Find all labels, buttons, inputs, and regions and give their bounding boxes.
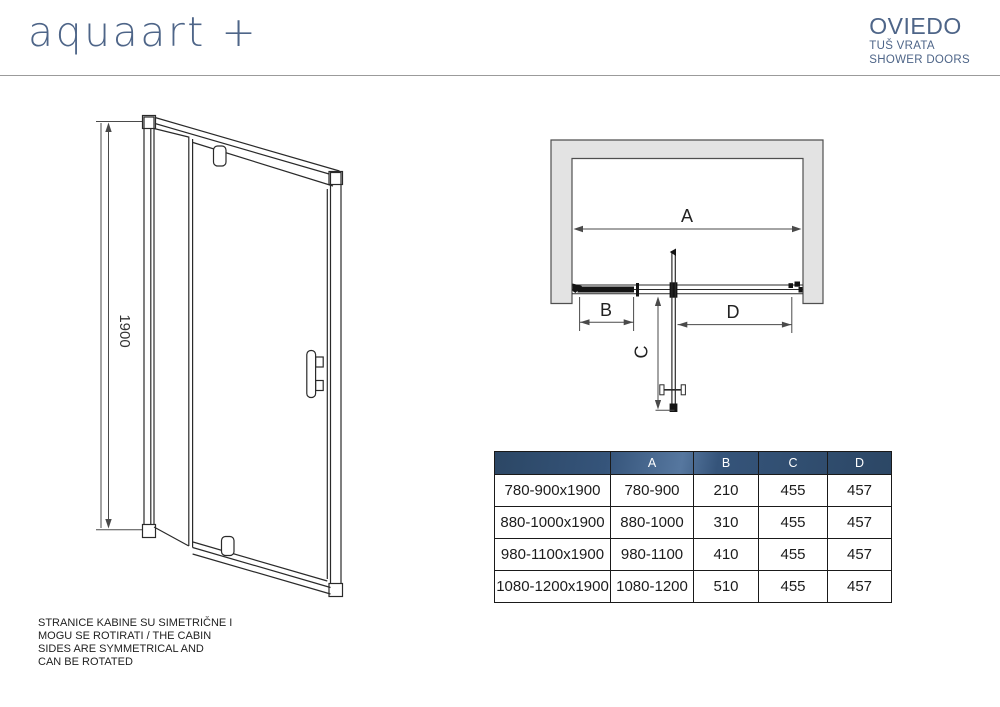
door-handle-top-view xyxy=(660,385,686,395)
product-name: OVIEDO xyxy=(869,14,970,39)
brand-logo: aquaart + xyxy=(28,8,258,56)
cell-b: 310 xyxy=(694,507,759,539)
cell-size: 880-1000x1900 xyxy=(495,507,611,539)
note-line: MOGU SE ROTIRATI / THE CABIN xyxy=(38,630,232,643)
door-handle xyxy=(307,351,323,398)
product-subtitle-en: SHOWER DOORS xyxy=(869,53,970,67)
top-view-drawing: A xyxy=(535,128,870,428)
col-header-a: A xyxy=(611,452,694,475)
cell-c: 455 xyxy=(759,571,828,603)
cell-d: 457 xyxy=(828,475,892,507)
note-line: STRANICE KABINE SU SIMETRIČNE I xyxy=(38,617,232,630)
table-row: 880-1000x1900 880-1000 310 455 457 xyxy=(495,507,892,539)
cell-c: 455 xyxy=(759,507,828,539)
top-clip xyxy=(214,146,227,166)
dim-c-label: C xyxy=(632,346,652,359)
cell-size: 780-900x1900 xyxy=(495,475,611,507)
col-header-b: B xyxy=(694,452,759,475)
cell-b: 410 xyxy=(694,539,759,571)
note-line: CAN BE ROTATED xyxy=(38,656,232,669)
cell-a: 880-1000 xyxy=(611,507,694,539)
header-divider xyxy=(0,75,1000,76)
size-table-header-row: A B C D xyxy=(495,452,892,475)
note-line: SIDES ARE SYMMETRICAL AND xyxy=(38,643,232,656)
cell-a: 980-1100 xyxy=(611,539,694,571)
cell-a: 1080-1200 xyxy=(611,571,694,603)
dimension-a: A xyxy=(574,206,802,232)
cell-size: 1080-1200x1900 xyxy=(495,571,611,603)
pivot-block xyxy=(670,282,678,297)
symmetry-note: STRANICE KABINE SU SIMETRIČNE I MOGU SE … xyxy=(38,617,232,669)
col-header-d: D xyxy=(828,452,892,475)
cell-b: 510 xyxy=(694,571,759,603)
cell-d: 457 xyxy=(828,507,892,539)
dim-d-label: D xyxy=(727,302,740,322)
dim-a-label: A xyxy=(681,206,693,226)
cell-a: 780-900 xyxy=(611,475,694,507)
cell-d: 457 xyxy=(828,539,892,571)
col-header-c: C xyxy=(759,452,828,475)
title-block: OVIEDO TUŠ VRATA SHOWER DOORS xyxy=(869,14,970,67)
door-track xyxy=(572,282,803,298)
cell-d: 457 xyxy=(828,571,892,603)
dim-b-label: B xyxy=(600,300,612,320)
spec-sheet-page: aquaart + OVIEDO TUŠ VRATA SHOWER DOORS … xyxy=(0,0,1000,707)
product-subtitle-hr: TUŠ VRATA xyxy=(869,39,970,53)
height-dimension-label: 1900 xyxy=(116,314,133,347)
cell-b: 210 xyxy=(694,475,759,507)
open-door-leaf xyxy=(660,249,686,413)
dimension-c: C xyxy=(632,297,675,411)
bottom-clip xyxy=(222,537,235,556)
dimension-b: B xyxy=(580,297,634,331)
col-header-size xyxy=(495,452,611,475)
dimension-height-1900: 1900 xyxy=(96,122,151,530)
table-row: 980-1100x1900 980-1100 410 455 457 xyxy=(495,539,892,571)
cell-size: 980-1100x1900 xyxy=(495,539,611,571)
cell-c: 455 xyxy=(759,539,828,571)
front-view-drawing: 1900 xyxy=(85,95,390,610)
table-row: 1080-1200x1900 1080-1200 510 455 457 xyxy=(495,571,892,603)
cell-c: 455 xyxy=(759,475,828,507)
dimension-d: D xyxy=(678,297,792,333)
size-table: A B C D 780-900x1900 780-900 210 455 457… xyxy=(494,451,892,603)
table-row: 780-900x1900 780-900 210 455 457 xyxy=(495,475,892,507)
